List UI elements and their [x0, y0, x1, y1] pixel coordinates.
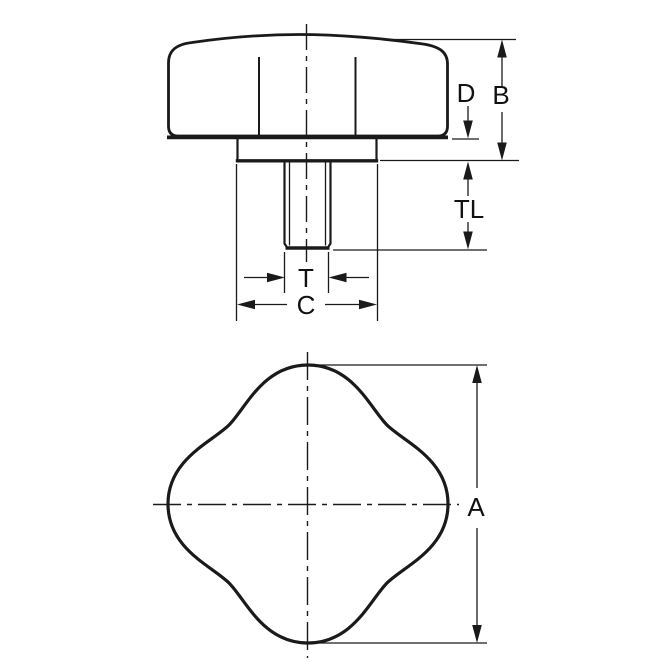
front-view: A: [153, 352, 487, 658]
stud-outline: [285, 162, 331, 248]
arrow-d-down: [463, 121, 473, 139]
knob-body-outline: [169, 35, 448, 137]
dimension-label-TL: TL: [454, 194, 484, 224]
arrow-b-down: [497, 143, 507, 161]
knob-drawing-svg: B D TL T: [0, 0, 670, 670]
arrow-t-left: [329, 273, 347, 283]
dimension-label-C: C: [297, 290, 316, 320]
arrow-b-up: [497, 40, 507, 58]
side-view: B D TL T: [167, 24, 519, 321]
dimension-D: D: [457, 78, 476, 196]
arrow-c-right: [359, 300, 377, 310]
dimension-label-D: D: [457, 78, 476, 108]
dimension-T: T: [244, 263, 369, 293]
dimension-label-T: T: [298, 263, 314, 293]
arrow-a-up: [472, 365, 482, 383]
arrow-d-up: [463, 162, 473, 180]
arrow-tl-down: [463, 232, 473, 250]
dimension-C: C: [237, 290, 377, 320]
dimension-B: B: [492, 40, 509, 161]
arrow-c-left: [237, 300, 255, 310]
dimension-label-B: B: [492, 80, 509, 110]
arrow-t-right: [267, 273, 285, 283]
arrow-a-down: [472, 625, 482, 643]
dimension-TL: TL: [454, 194, 484, 250]
technical-drawing-canvas: B D TL T: [0, 0, 670, 670]
dimension-label-A: A: [467, 492, 485, 522]
dimension-A: A: [467, 365, 485, 643]
stud-thread-lines: [290, 163, 326, 246]
